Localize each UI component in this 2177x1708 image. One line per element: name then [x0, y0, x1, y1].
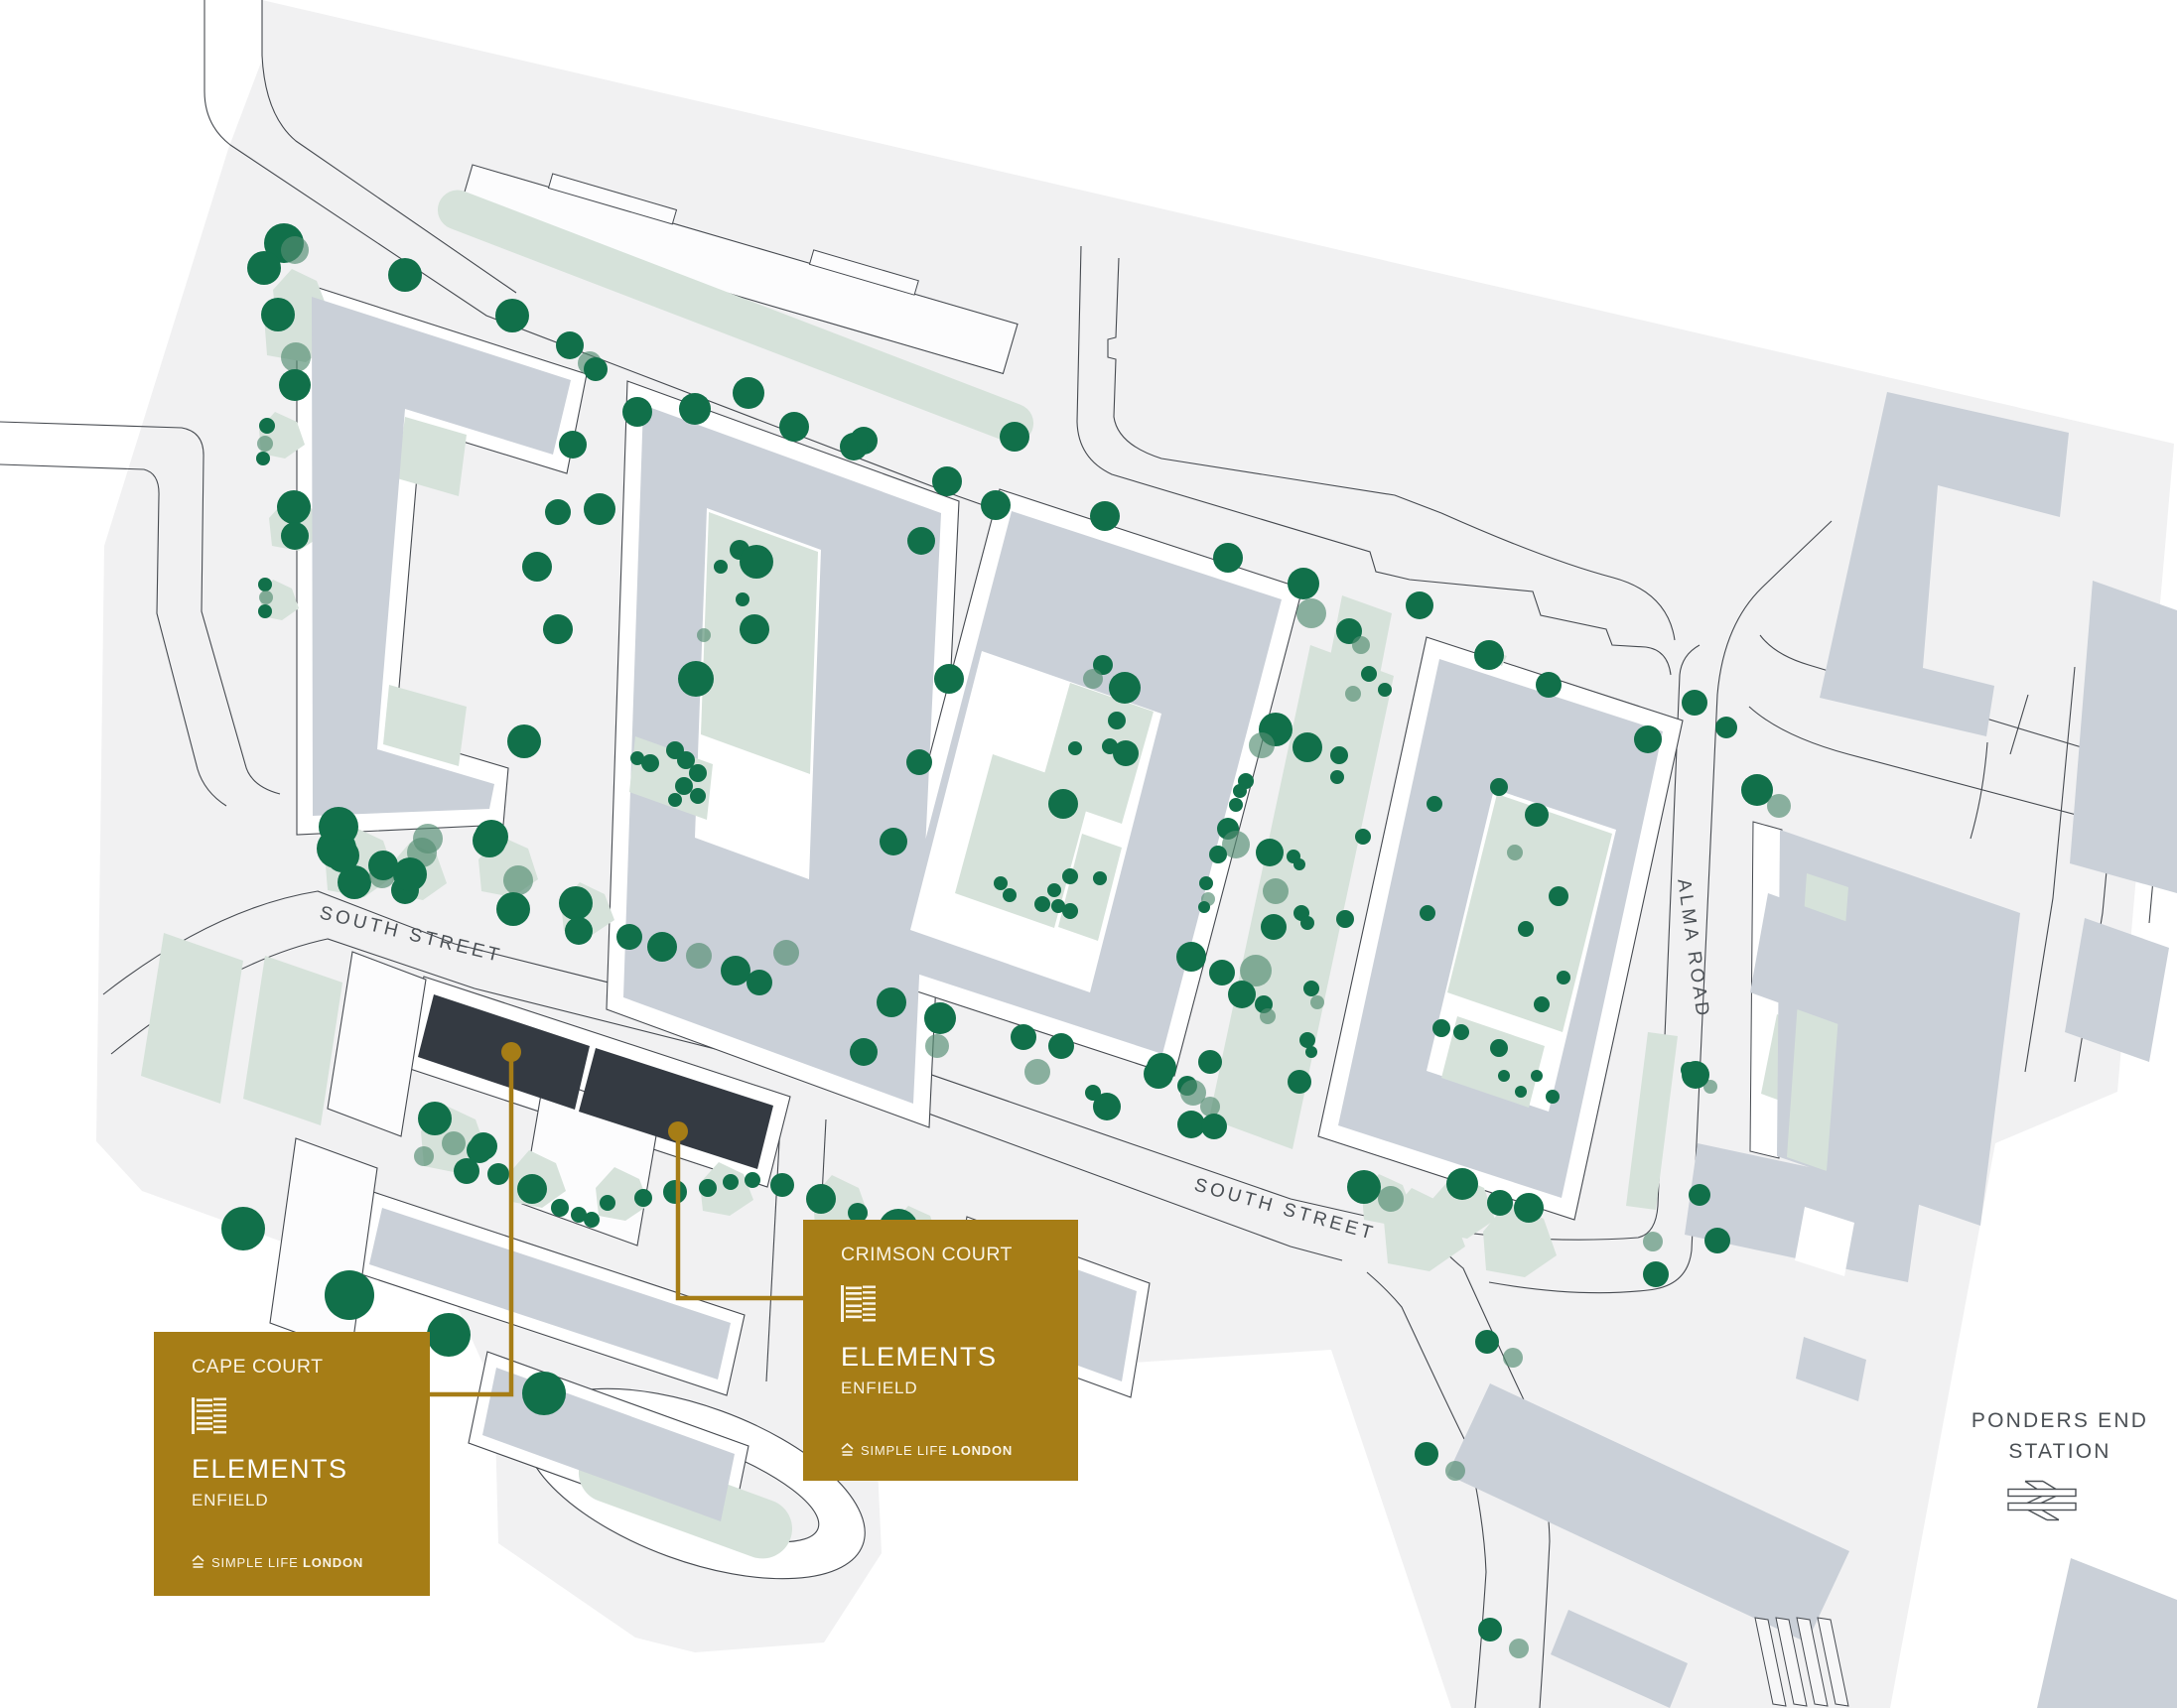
- svg-text:SIMPLE LIFE LONDON: SIMPLE LIFE LONDON: [861, 1443, 1013, 1458]
- svg-text:ELEMENTS: ELEMENTS: [192, 1454, 348, 1484]
- svg-text:CAPE COURT: CAPE COURT: [192, 1356, 324, 1378]
- svg-text:STATION: STATION: [2008, 1440, 2110, 1463]
- svg-text:ELEMENTS: ELEMENTS: [841, 1342, 998, 1372]
- svg-text:CRIMSON COURT: CRIMSON COURT: [841, 1244, 1013, 1265]
- svg-text:ENFIELD: ENFIELD: [841, 1379, 917, 1397]
- svg-text:PONDERS END: PONDERS END: [1972, 1409, 2148, 1432]
- svg-text:SIMPLE LIFE LONDON: SIMPLE LIFE LONDON: [211, 1555, 363, 1570]
- svg-text:ENFIELD: ENFIELD: [192, 1491, 268, 1510]
